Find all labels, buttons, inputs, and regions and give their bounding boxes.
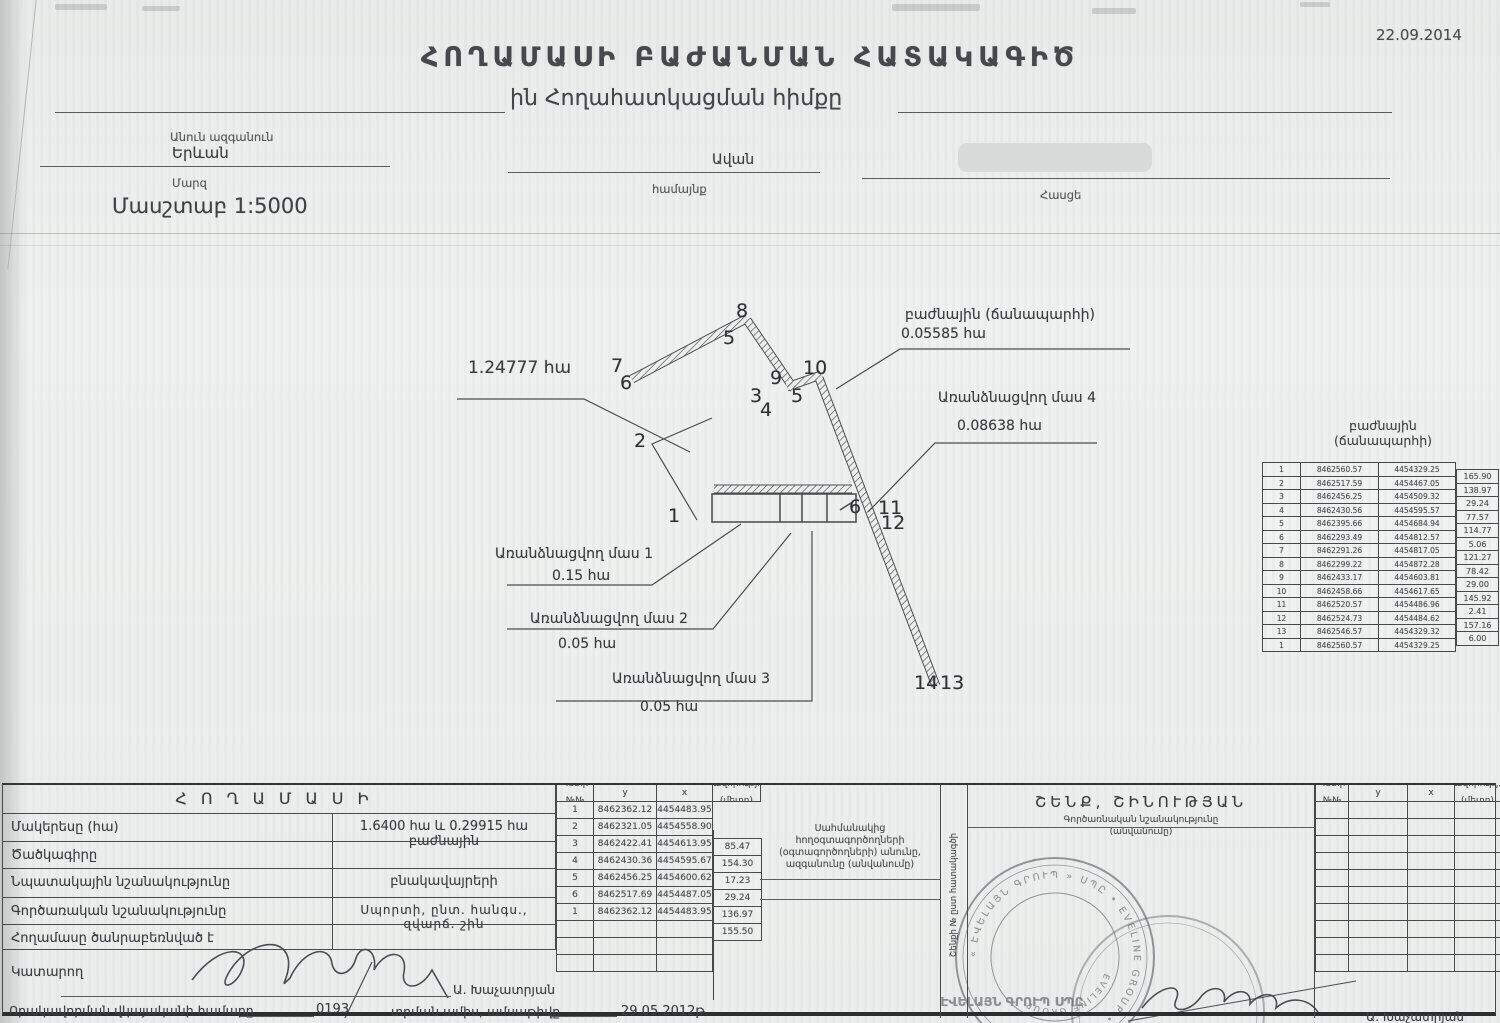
empty-table-cell: [1316, 904, 1349, 921]
table-cell: 4454600.62: [657, 870, 713, 887]
empty-table-cell: [1455, 887, 1500, 904]
area1-label: 1.24777 հա: [468, 358, 571, 378]
community-label: համայնք: [652, 182, 707, 196]
table-row: 98462433.174454603.81: [1263, 571, 1456, 585]
table-cell: 8462560.57: [1301, 463, 1379, 477]
table-row: 108462458.664454617.65: [1263, 585, 1456, 599]
table-cell: 4454595.57: [1379, 504, 1456, 518]
building-empty-rows: [1316, 802, 1500, 972]
address-underline: [862, 178, 1390, 179]
certificate-line: [240, 1016, 314, 1017]
table-cell: 8462362.12: [594, 904, 657, 921]
empty-table-cell: [1316, 938, 1349, 955]
row-value: 1.6400 հա և 0.29915 հա բաժնային: [333, 814, 556, 842]
neighbors-note-line: հողօգտագործողների: [760, 835, 940, 847]
table-cell: 8462433.17: [1301, 571, 1379, 585]
building-number-label: Շենքի № ըստ հատակագծի: [949, 795, 959, 995]
table-cell: 4454483.95: [657, 802, 713, 819]
empty-table-row: [1316, 955, 1500, 972]
col-dist-header: Հեռավորությունը (մետր): [1455, 785, 1500, 802]
table-row: 18462362.124454483.95: [557, 802, 761, 819]
plan-point-label: 1: [668, 505, 680, 527]
table-cell: 8462395.66: [1301, 517, 1379, 531]
empty-table-cell: [1408, 870, 1455, 887]
table-cell: 8462456.25: [594, 870, 657, 887]
empty-table-cell: [1408, 887, 1455, 904]
empty-table-cell: [594, 938, 657, 955]
plan-point-label: 12: [881, 512, 905, 534]
table-cell: 8462291.26: [1301, 544, 1379, 558]
certificate-number: 0193: [316, 1002, 349, 1017]
plan-point-label: 6: [849, 496, 861, 518]
table-cell: 8462293.49: [1301, 531, 1379, 545]
plan-point-label: 9: [770, 367, 782, 389]
road-distances-column: 165.90138.9729.2477.57114.775.06121.2778…: [1456, 469, 1499, 646]
road-share-area: 0.05585 հա: [901, 326, 986, 342]
empty-table-cell: [1408, 955, 1455, 972]
empty-table-cell: [1408, 904, 1455, 921]
table-cell: 4454603.81: [1379, 571, 1456, 585]
scanned-document: 22.09.2014 ՀՈՂԱՄԱՍԻ ԲԱԺԱՆՄԱՆ ՀԱՏԱԿԱԳԻԾ ի…: [0, 0, 1500, 1023]
table-cell: 5: [557, 870, 594, 887]
table-row: 38462456.254454509.32: [1263, 490, 1456, 504]
table-row: 58462395.664454684.94: [1263, 517, 1456, 531]
redacted-area: [958, 143, 1152, 172]
table-cell: 8462430.56: [1301, 504, 1379, 518]
row-label: Նպատակային նշանակությունը: [3, 869, 333, 898]
address-label: Հասցե: [1040, 188, 1081, 202]
distance-cell: 29.00: [1457, 578, 1499, 592]
table-cell: 8: [1263, 558, 1301, 572]
table-cell: 11: [1263, 598, 1301, 612]
issue-date: 29.05.2012թ.: [621, 1004, 709, 1019]
empty-table-cell: [557, 955, 594, 972]
neighbors-note-line: (օգտագործողների) անունը,: [760, 847, 940, 859]
empty-table-cell: [1408, 921, 1455, 938]
table-cell: 4454329.25: [1379, 463, 1456, 477]
road-table-title-line1: բաժնային: [1298, 418, 1468, 433]
empty-table-cell: [1349, 938, 1408, 955]
empty-table-cell: [1408, 836, 1455, 853]
empty-table-cell: [1455, 938, 1500, 955]
part4-label: Առանձնացվող մաս 4: [938, 390, 1096, 406]
subtitle-underline-right: [898, 112, 1392, 113]
executor-label: Կատարող: [11, 965, 83, 980]
table-cell: 1: [1263, 463, 1301, 477]
table-cell: 4: [557, 853, 594, 870]
scale-text: Մասշտաբ 1:5000: [112, 194, 308, 218]
empty-table-cell: [1349, 802, 1408, 819]
distance-cell: 145.92: [1457, 592, 1499, 606]
empty-table-row: [1316, 938, 1500, 955]
empty-table-cell: [1316, 853, 1349, 870]
road-table-title: բաժնային (ճանապարհի): [1298, 418, 1468, 448]
table-cell: 8462524.73: [1301, 612, 1379, 626]
table-row: 68462293.494454812.57: [1263, 531, 1456, 545]
scan-artifact: [55, 4, 107, 10]
empty-table-cell: [1349, 904, 1408, 921]
part4-area: 0.08638 հա: [957, 418, 1042, 434]
table-cell: 8462520.57: [1301, 598, 1379, 612]
empty-table-row: [1316, 921, 1500, 938]
distance-cell: 114.77: [1457, 524, 1499, 538]
empty-table-cell: [1408, 819, 1455, 836]
city-value: Երևան: [172, 144, 229, 162]
empty-table-cell: [1455, 870, 1500, 887]
distance-cell: 121.27: [1457, 551, 1499, 565]
part1-area: 0.15 հա: [552, 568, 610, 584]
distance-cell: 2.41: [1457, 605, 1499, 619]
table-cell: 4454467.05: [1379, 477, 1456, 491]
col-point-header: Կետի №№: [557, 785, 594, 802]
distance-cell: 77.57: [1457, 511, 1499, 525]
table-cell: 9: [1263, 571, 1301, 585]
table-cell: 8462299.22: [1301, 558, 1379, 572]
distance-cell: 157.16: [1457, 619, 1499, 633]
row-value: [333, 925, 556, 950]
neighbors-row-line: [760, 879, 941, 880]
empty-table-cell: [1316, 802, 1349, 819]
table-cell: 4454558.90: [657, 819, 713, 836]
scan-artifact: [142, 6, 180, 11]
table-cell: 4454812.57: [1379, 531, 1456, 545]
distance-cell: 155.50: [714, 924, 762, 941]
table-row: 78462291.264454817.05: [1263, 544, 1456, 558]
empty-table-cell: [657, 955, 713, 972]
table-cell: 12: [1263, 612, 1301, 626]
executor-name: Ա. Խաչատրյան: [453, 982, 555, 997]
col-x-header: x: [657, 785, 713, 802]
empty-table-cell: [657, 938, 713, 955]
neighbors-note-line: Սահմանակից: [760, 823, 940, 835]
table-cell: 8462422.41: [594, 836, 657, 853]
road-coordinates-table: 18462560.574454329.2528462517.594454467.…: [1262, 462, 1456, 652]
scan-artifact: [1300, 2, 1330, 7]
building-subheader: (անվանումը): [968, 827, 1314, 839]
table-cell: 4: [1263, 504, 1301, 518]
table-cell: 1: [557, 802, 594, 819]
building-header: ՇԵՆՔ, ՇԻՆՈՒԹՅԱՆ: [968, 785, 1314, 811]
plan-point-label: 6: [620, 372, 632, 394]
page-title: ՀՈՂԱՄԱՍԻ ԲԱԺԱՆՄԱՆ ՀԱՏԱԿԱԳԻԾ: [390, 42, 1110, 73]
empty-table-row: [1316, 887, 1500, 904]
table-row: 118462520.574454486.96: [1263, 598, 1456, 612]
plan-point-label: 5: [791, 385, 803, 407]
land-header-cell: ՀՈՂԱՄԱՍԻ: [3, 785, 556, 814]
empty-table-cell: [1349, 836, 1408, 853]
table-cell: 6: [1263, 531, 1301, 545]
table-cell: 4454487.05: [657, 887, 713, 904]
part3-label: Առանձնացվող մաս 3: [612, 671, 770, 687]
table-cell: 8462517.69: [594, 887, 657, 904]
region-label: Մարզ: [172, 176, 207, 190]
distance-cell: 17.23: [714, 873, 762, 890]
table-cell: 2: [557, 819, 594, 836]
table-cell: 7: [1263, 544, 1301, 558]
building-number-column: Շենքի № ըստ հատակագծի: [941, 785, 968, 1018]
table-cell: 2: [1263, 477, 1301, 491]
plan-point-label: 5: [723, 327, 735, 349]
table-cell: 8462456.25: [1301, 490, 1379, 504]
empty-table-cell: [557, 921, 594, 938]
empty-table-cell: [1408, 802, 1455, 819]
community-value: Ավան: [712, 152, 754, 168]
neighbors-row-line: [760, 899, 941, 900]
issue-label: տրման ամիս, ամսաթիվը: [391, 1004, 560, 1019]
city-underline: [40, 166, 390, 167]
parcel-rectangle: [712, 494, 856, 522]
plan-point-label: 2: [634, 430, 646, 452]
subtitle-underline-left: [55, 112, 505, 113]
empty-table-row: [557, 955, 761, 972]
table-cell: 4454509.32: [1379, 490, 1456, 504]
empty-table-cell: [594, 955, 657, 972]
table-cell: 3: [1263, 490, 1301, 504]
table-cell: 13: [1263, 625, 1301, 639]
table-cell: 4454329.25: [1379, 639, 1456, 653]
table-cell: 3: [557, 836, 594, 853]
part2-area: 0.05 հա: [558, 636, 616, 652]
plan-point-label: 4: [760, 399, 772, 421]
table-row: 28462517.594454467.05: [1263, 477, 1456, 491]
table-cell: 4454817.05: [1379, 544, 1456, 558]
table-cell: 8462430.36: [594, 853, 657, 870]
empty-table-cell: [1316, 887, 1349, 904]
plan-point-label: 14: [914, 672, 938, 694]
empty-table-cell: [1349, 819, 1408, 836]
table-cell: 8462362.12: [594, 802, 657, 819]
document-date: 22.09.2014: [1376, 26, 1462, 44]
table-cell: 8462321.05: [594, 819, 657, 836]
neighbors-note-line: ազգանունը (անվանումը): [760, 859, 940, 871]
table-cell: 4454595.67: [657, 853, 713, 870]
building-subheader: Գործառնական նշանակությունը: [968, 815, 1314, 827]
table-row: 128462524.734454484.62: [1263, 612, 1456, 626]
table-cell: 4454684.94: [1379, 517, 1456, 531]
building-executor-name: Ա. Խաչատրյան: [1366, 1010, 1464, 1023]
row-value: բնակավայրերի: [333, 869, 556, 898]
executor-signature-line: [61, 996, 451, 997]
scan-artifact: [892, 4, 980, 11]
table-cell: 8462458.66: [1301, 585, 1379, 599]
table-cell: 4454484.62: [1379, 612, 1456, 626]
empty-table-cell: [1316, 955, 1349, 972]
empty-table-cell: [557, 938, 594, 955]
empty-table-row: [1316, 870, 1500, 887]
table-row: 28462321.054454558.90: [557, 819, 761, 836]
empty-table-cell: [1455, 955, 1500, 972]
table-cell: 8462546.57: [1301, 625, 1379, 639]
empty-table-cell: [1349, 921, 1408, 938]
bottom-table: ՀՈՂԱՄԱՍԻ Մակերեսը (հա) 1.6400 հա և 0.299…: [2, 783, 1496, 1016]
row-value: [333, 842, 556, 869]
empty-table-cell: [1455, 853, 1500, 870]
empty-table-cell: [1408, 938, 1455, 955]
empty-table-cell: [1349, 870, 1408, 887]
separator-line: [0, 233, 1500, 234]
plan-point-label: 8: [736, 300, 748, 322]
distance-cell: 29.24: [1457, 497, 1499, 511]
col-point-header: Կետի №№: [1316, 785, 1349, 802]
empty-table-cell: [1408, 853, 1455, 870]
table-row: 18462560.574454329.25: [1263, 463, 1456, 477]
road-share-label: բաժնային (ճանապարհի): [905, 307, 1095, 323]
empty-table-cell: [1455, 819, 1500, 836]
distance-cell: 85.47: [714, 839, 762, 856]
table-row: 18462560.574454329.25: [1263, 639, 1456, 653]
issue-line: [551, 1016, 617, 1017]
empty-table-row: [1316, 819, 1500, 836]
empty-table-cell: [1349, 955, 1408, 972]
certificate-label: Որակավորման վկայականի համարը: [9, 1003, 254, 1018]
table-cell: 6: [557, 887, 594, 904]
land-header: ՀՈՂԱՄԱՍԻ: [3, 785, 555, 808]
building-coordinates-table: Կետի №№ y x Հեռավորությունը (մետր): [1315, 785, 1500, 972]
plan-point-label: 13: [940, 672, 964, 694]
distance-cell: 138.97: [1457, 484, 1499, 498]
row-label: Ծածկագիրը: [3, 842, 333, 869]
table-cell: 1: [1263, 639, 1301, 653]
empty-table-cell: [657, 921, 713, 938]
table-cell: 8462560.57: [1301, 639, 1379, 653]
table-cell: 4454329.32: [1379, 625, 1456, 639]
table-cell: 4454613.95: [657, 836, 713, 853]
col-y-header: y: [1349, 785, 1408, 802]
coordinates-table-header: Կետի №№ y x Հեռավորությունը (մետր): [557, 785, 761, 802]
building-header-line: [968, 827, 1315, 828]
distance-cell: 154.30: [714, 856, 762, 873]
empty-table-cell: [1455, 921, 1500, 938]
empty-table-cell: [1349, 887, 1408, 904]
row-label: Մակերեսը (հա): [3, 814, 333, 842]
distance-cell: 165.90: [1457, 470, 1499, 484]
neighbors-cell: Սահմանակից հողօգտագործողների (օգտագործող…: [760, 785, 941, 1018]
empty-table-row: [1316, 802, 1500, 819]
table-cell: 1: [557, 904, 594, 921]
distance-cell: 136.97: [714, 907, 762, 924]
table-row: 48462430.564454595.57: [1263, 504, 1456, 518]
plan-point-label: 10: [803, 357, 827, 379]
col-dist-header: Հեռավորությունը (մետր): [713, 785, 761, 802]
empty-table-cell: [1455, 904, 1500, 921]
community-underline: [508, 172, 820, 173]
page-subtitle: ին Հողահատկացման հիմքը: [510, 86, 842, 111]
row-value: Սպորտի, ընտ. հանգս., զվարճ. շին: [333, 898, 556, 925]
table-cell: 4454486.96: [1379, 598, 1456, 612]
col-y-header: y: [594, 785, 657, 802]
empty-table-cell: [594, 921, 657, 938]
table-row: 88462299.224454872.28: [1263, 558, 1456, 572]
coordinates-table: Կետի №№ y x Հեռավորությունը (մետր) 18462…: [556, 785, 761, 972]
road-table-title-line2: (ճանապարհի): [1298, 433, 1468, 448]
table-cell: 5: [1263, 517, 1301, 531]
empty-table-row: [1316, 836, 1500, 853]
dist-col-border: [713, 830, 714, 1000]
distance-cell: 5.06: [1457, 538, 1499, 552]
distance-cell: 78.42: [1457, 565, 1499, 579]
table-cell: 4454872.28: [1379, 558, 1456, 572]
distance-cell: 6.00: [1457, 632, 1499, 646]
table-cell: 4454483.95: [657, 904, 713, 921]
part1-label: Առանձնացվող մաս 1: [495, 546, 653, 562]
distance-cell: 29.24: [714, 890, 762, 907]
empty-table-cell: [1316, 819, 1349, 836]
row-label: Հողամասը ծանրաբեռնված է: [3, 925, 333, 950]
separator-line-2: [0, 245, 1500, 246]
part2-label: Առանձնացվող մաս 2: [530, 611, 688, 627]
table-cell: 8462517.59: [1301, 477, 1379, 491]
building-table-header: Կետի №№ y x Հեռավորությունը (մետր): [1316, 785, 1500, 802]
col-x-header: x: [1408, 785, 1455, 802]
empty-table-cell: [1455, 802, 1500, 819]
name-label: Անուն ազգանուն: [170, 130, 273, 144]
part3-area: 0.05 հա: [640, 699, 698, 715]
row-label: Գործառական նշանակությունը: [3, 898, 333, 925]
scan-artifact: [1092, 8, 1136, 14]
empty-table-cell: [1316, 836, 1349, 853]
table-row: 138462546.574454329.32: [1263, 625, 1456, 639]
empty-table-cell: [1349, 853, 1408, 870]
empty-table-cell: [1316, 870, 1349, 887]
empty-table-row: [1316, 904, 1500, 921]
empty-table-row: [1316, 853, 1500, 870]
table-cell: 10: [1263, 585, 1301, 599]
building-section: ՇԵՆՔ, ՇԻՆՈՒԹՅԱՆ Գործառնական նշանակությու…: [968, 785, 1315, 1018]
empty-table-cell: [1316, 921, 1349, 938]
table-cell: 4454617.65: [1379, 585, 1456, 599]
empty-table-cell: [1455, 836, 1500, 853]
coordinates-distances: 85.47154.3017.2329.24136.97155.50: [713, 838, 762, 941]
